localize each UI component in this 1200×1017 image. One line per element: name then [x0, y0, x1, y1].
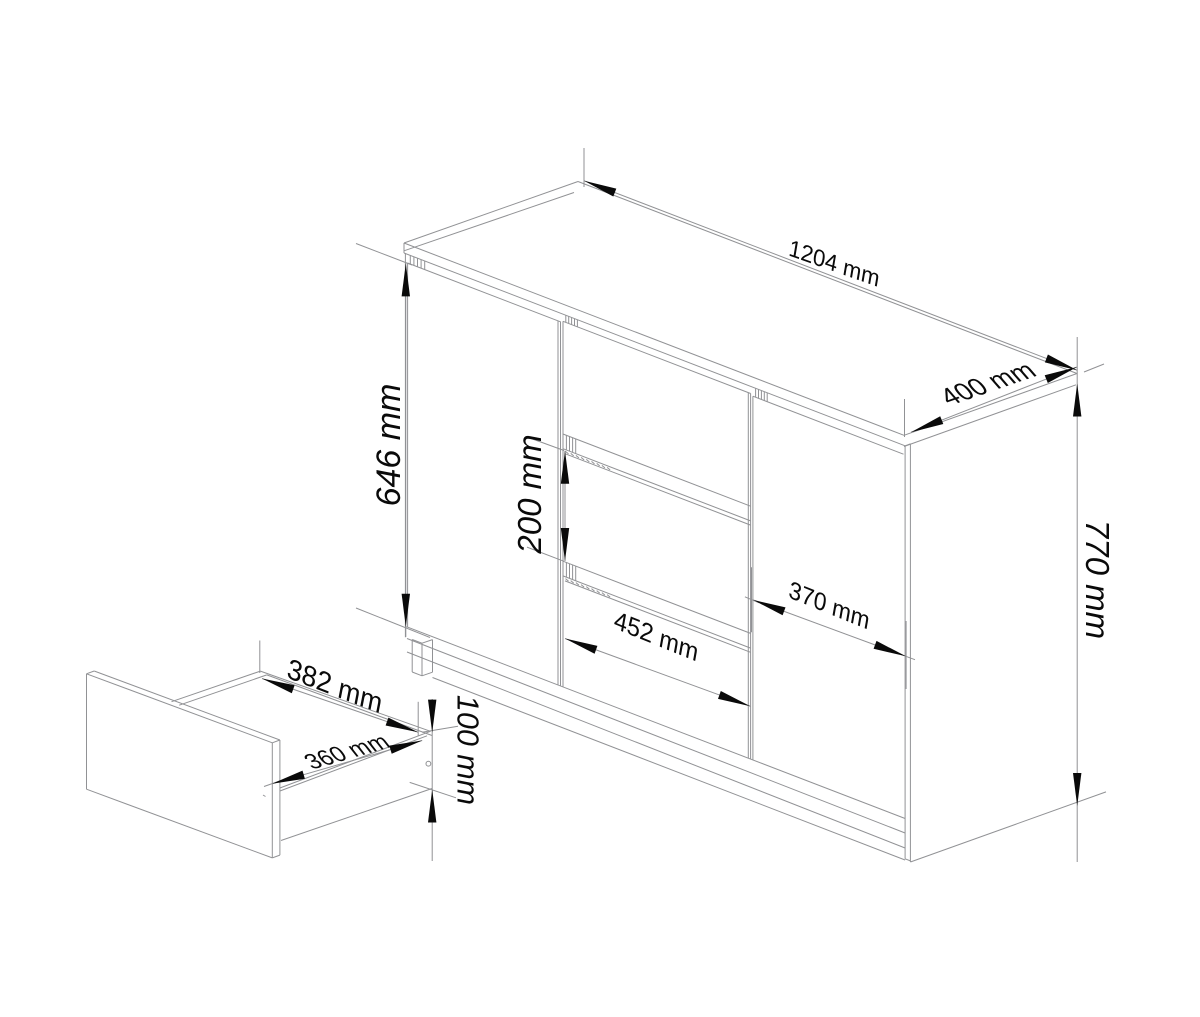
svg-text:646 mm: 646 mm: [370, 384, 408, 507]
svg-text:100 mm: 100 mm: [450, 695, 484, 805]
svg-text:200 mm: 200 mm: [511, 434, 548, 554]
svg-text:770 mm: 770 mm: [1079, 520, 1116, 639]
